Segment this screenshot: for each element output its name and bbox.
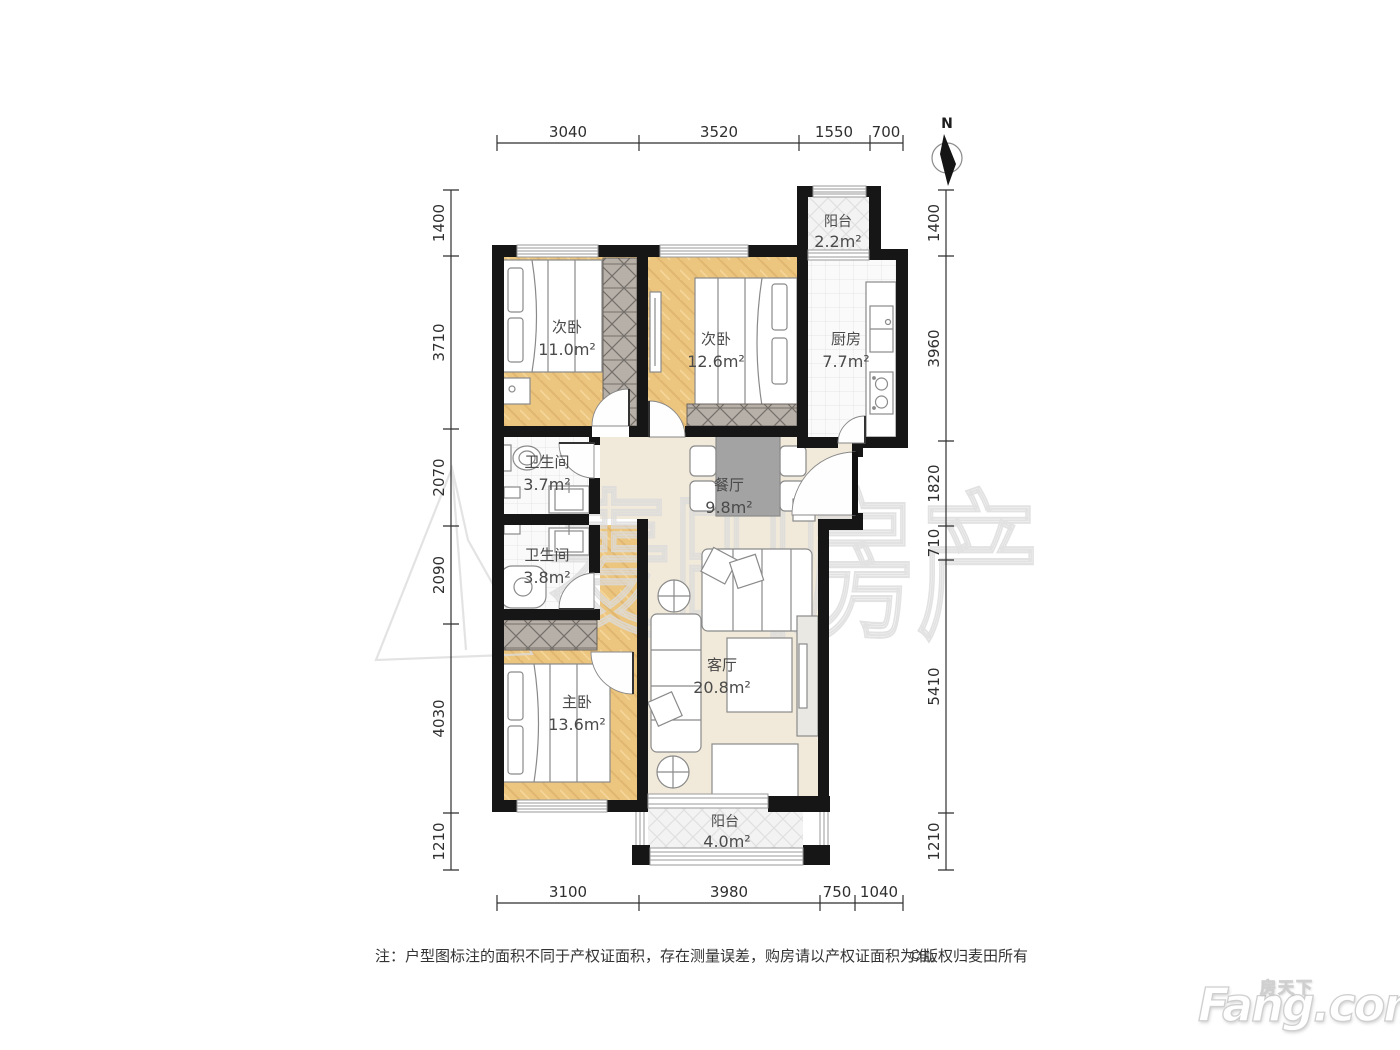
compass-needle-icon [940, 134, 956, 186]
balcony-bottom-label: 阳台 [711, 814, 739, 830]
rug-icon [712, 744, 798, 798]
floorplan-page: 麦田房产 [0, 0, 1400, 1050]
disclaimer-text: 注：户型图标注的面积不同于产权证面积，存在测量误差，购房请以产权证面积为准。 [375, 945, 945, 966]
balcony-top-label: 阳台 [824, 214, 852, 230]
living-label: 客厅 [707, 656, 737, 674]
kitchen-area: 7.7m² [822, 352, 869, 371]
balcony-bottom-area: 4.0m² [703, 832, 750, 851]
bath-a-label: 卫生间 [524, 453, 569, 471]
dim-right-0: 1400 [925, 204, 943, 242]
nightstand-icon [500, 378, 530, 404]
north-label: N [941, 116, 953, 132]
dim-left-0: 1400 [430, 204, 448, 242]
window-bedroom-a [517, 245, 598, 257]
kitchen-label: 厨房 [831, 330, 861, 348]
dim-right-4: 5410 [925, 667, 943, 705]
dim-left-2: 2070 [430, 458, 448, 496]
copyright-text: ©版权归麦田所有 [908, 945, 1028, 966]
bath-a-area: 3.7m² [523, 475, 570, 494]
dim-left-5: 1210 [430, 822, 448, 860]
slider-balcony-top [808, 250, 869, 260]
dim-top-1: 3520 [700, 123, 738, 141]
tv-icon-living [799, 644, 807, 708]
dim-bottom-1: 3980 [710, 883, 748, 901]
master-label: 主卧 [562, 693, 592, 711]
dim-right-2: 1820 [925, 464, 943, 502]
window-balcony-top [813, 186, 866, 197]
chair-icon [690, 446, 716, 476]
wardrobe-icon-bedroom-b [687, 404, 797, 426]
north-arrow: N [932, 116, 962, 186]
bedroom-b-label: 次卧 [701, 330, 731, 348]
fang-cn-label: 房天下 [1260, 974, 1314, 998]
dim-right-5: 1210 [925, 822, 943, 860]
dining-label: 餐厅 [714, 476, 744, 494]
dim-right-3: 710 [925, 529, 943, 558]
bedroom-a-area: 11.0m² [538, 340, 596, 359]
dim-bottom-3: 1040 [860, 883, 898, 901]
window-bedroom-b [660, 245, 748, 257]
round-table-icon [657, 756, 689, 788]
kitchen-counter [866, 282, 896, 437]
bath-b-label: 卫生间 [524, 546, 569, 564]
chair-icon [780, 446, 806, 476]
radiator-icon-bath-a [504, 487, 520, 498]
dining-area: 9.8m² [705, 498, 752, 517]
coffee-table-icon [727, 638, 792, 712]
master-area: 13.6m² [548, 715, 606, 734]
dim-bottom-2: 750 [823, 883, 852, 901]
dim-top-0: 3040 [549, 123, 587, 141]
slider-living-balcony [648, 794, 768, 808]
dim-left-1: 3710 [430, 323, 448, 361]
bedroom-b-area: 12.6m² [687, 352, 745, 371]
floorplan-drawing: 麦田房产 [0, 0, 1400, 1050]
window-balcony-right-frame [820, 812, 828, 845]
wardrobe-icon-master [503, 620, 597, 650]
window-balcony-left-frame [636, 812, 644, 845]
round-table-icon [658, 580, 690, 612]
dim-bottom-0: 3100 [549, 883, 587, 901]
dim-top-3: 700 [872, 123, 901, 141]
balcony-top-area: 2.2m² [814, 232, 861, 251]
fang-watermark: 房天下 Fang.com [1198, 978, 1398, 1044]
dim-top-2: 1550 [815, 123, 853, 141]
window-master [517, 800, 607, 812]
bedroom-a-label: 次卧 [552, 318, 582, 336]
living-area: 20.8m² [693, 678, 751, 697]
dim-left-4: 4030 [430, 699, 448, 737]
dim-left-3: 2090 [430, 556, 448, 594]
note-bar: 注：户型图标注的面积不同于产权证面积，存在测量误差，购房请以产权证面积为准。 ©… [0, 945, 1400, 967]
dim-right-1: 3960 [925, 329, 943, 367]
bath-b-area: 3.8m² [523, 568, 570, 587]
